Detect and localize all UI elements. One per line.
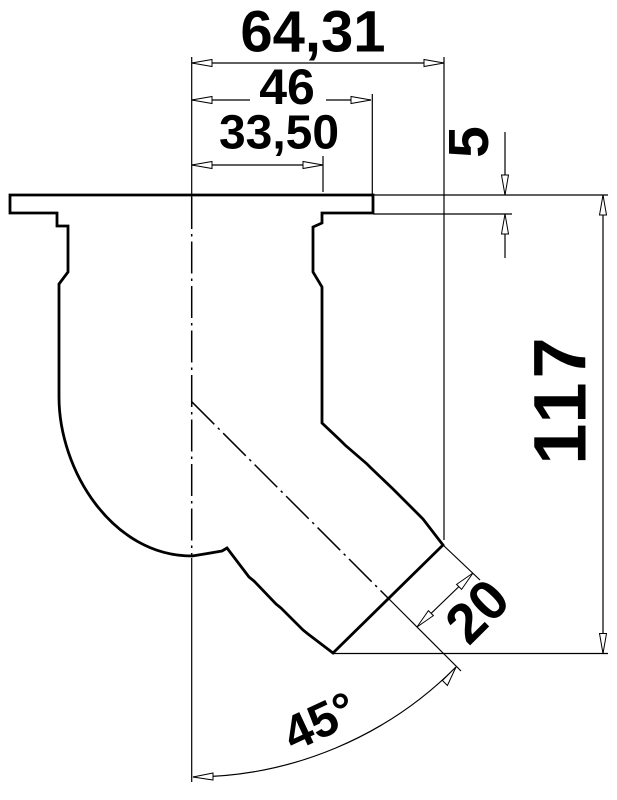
- dim-label-spout-angle: 45°: [275, 682, 365, 762]
- dim-label-spout-radius: 20: [433, 567, 522, 656]
- centerline-branch: [192, 402, 390, 600]
- arrow-right-46: [351, 97, 371, 104]
- arrow-down-5: [502, 175, 509, 195]
- arrow-up-5: [502, 214, 509, 234]
- dim-label-overall-height: 117: [519, 333, 602, 464]
- technical-drawing-canvas: 64,31 46 33,50 5 117 20 45°: [0, 0, 617, 800]
- arrow-up-117: [600, 195, 607, 215]
- arrow-down-117: [600, 634, 607, 654]
- dim-label-flange-thickness: 5: [437, 126, 501, 158]
- arrow-lower-20: [417, 611, 433, 627]
- dim-label-overall-width: 64,31: [240, 0, 385, 65]
- arrow-arc-bottom: [193, 773, 213, 780]
- arrow-left-64: [192, 60, 212, 67]
- drawing-svg: 64,31 46 33,50 5 117 20 45°: [0, 0, 617, 800]
- dim-label-neck-half-width: 33,50: [219, 107, 339, 160]
- arrow-arc-top: [442, 667, 456, 686]
- centerlines: [192, 197, 390, 600]
- arrow-right-33: [303, 162, 323, 169]
- arrow-left-33: [192, 162, 212, 169]
- arrow-left-46: [192, 97, 212, 104]
- arrow-right-64: [424, 60, 444, 67]
- dimension-labels: 64,31 46 33,50 5 117 20 45°: [219, 0, 602, 762]
- part-outline: [10, 195, 443, 653]
